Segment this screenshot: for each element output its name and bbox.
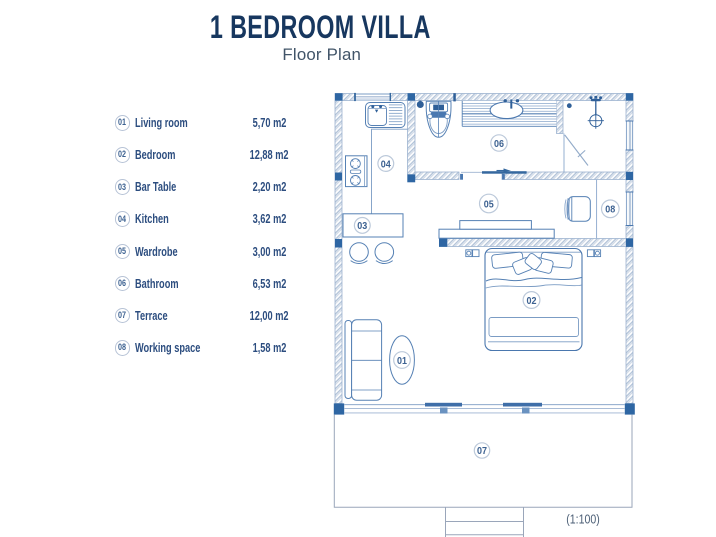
svg-text:04: 04 [381,158,391,170]
svg-text:08: 08 [605,204,615,216]
svg-text:01: 01 [397,355,407,367]
svg-text:(1:100): (1:100) [566,513,600,527]
svg-text:07: 07 [477,445,487,457]
svg-text:02: 02 [527,295,537,307]
svg-text:03: 03 [357,220,367,232]
svg-text:05: 05 [484,198,494,210]
svg-text:06: 06 [494,138,504,150]
